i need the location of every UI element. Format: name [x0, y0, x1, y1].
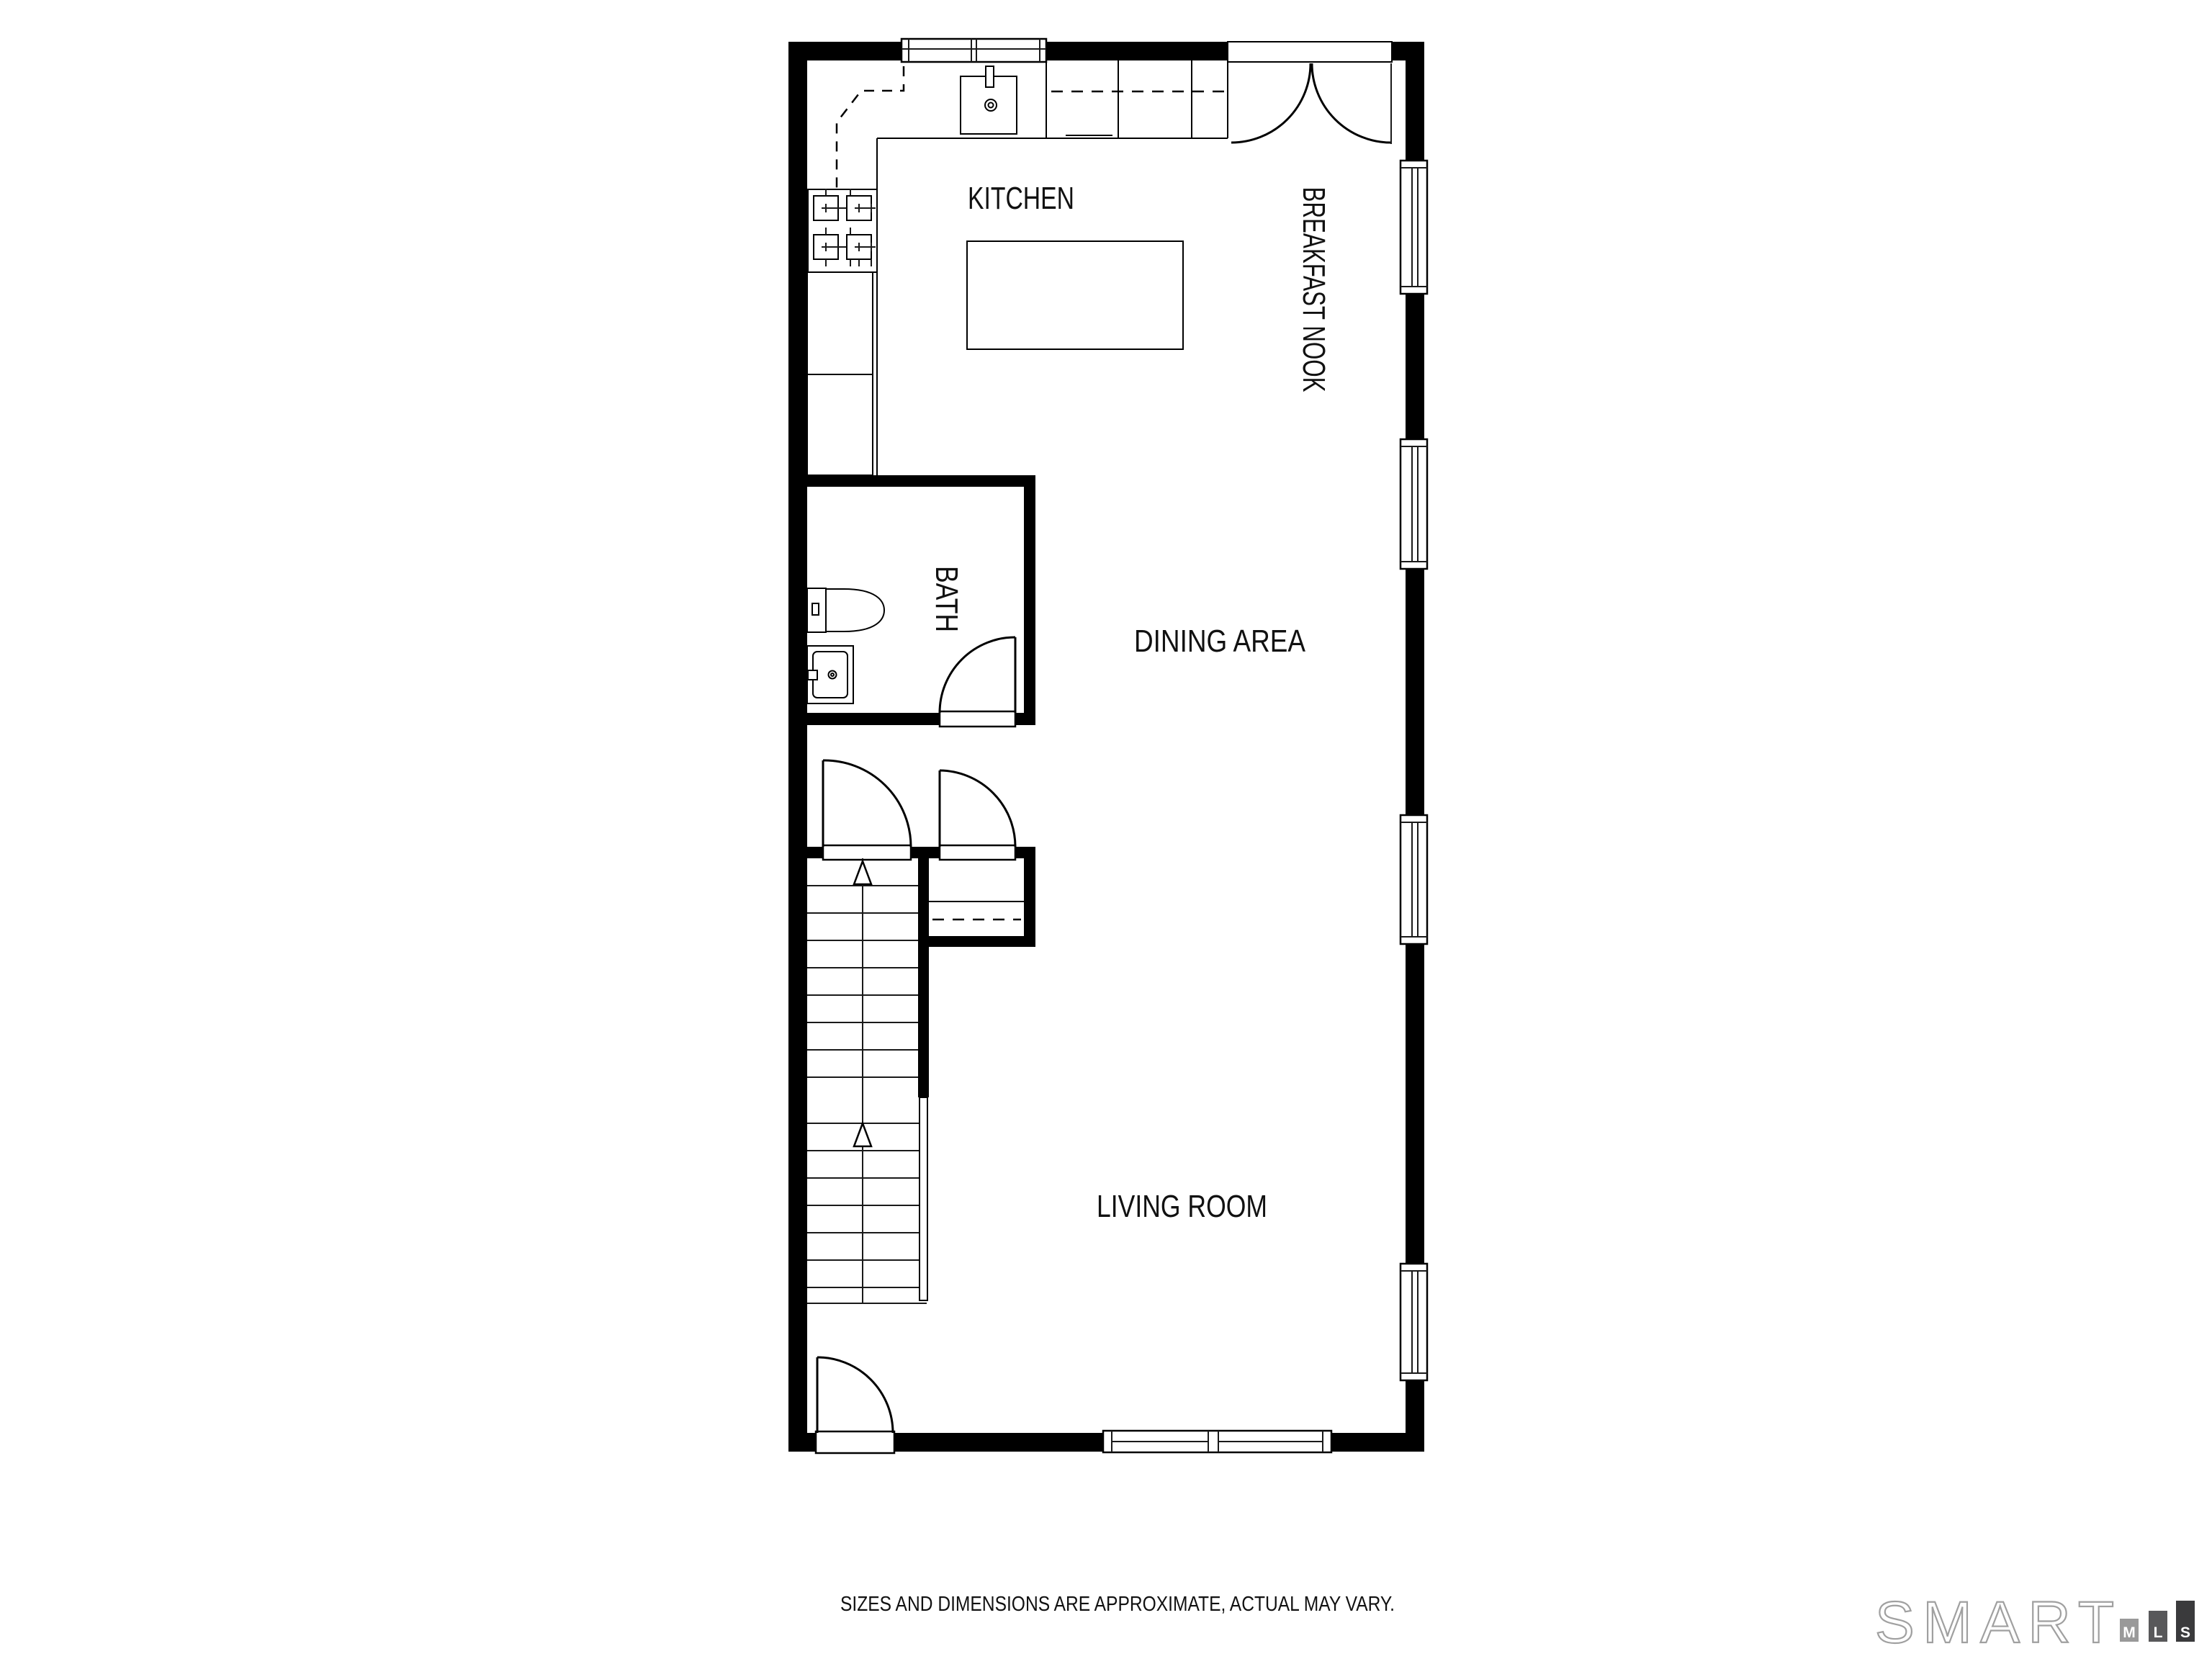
wall-stair-divider: [918, 847, 929, 1097]
logo-bar-m-letter: M: [2123, 1624, 2136, 1641]
wall-top-2: [1046, 42, 1228, 60]
wall-closet-right: [1024, 847, 1035, 947]
wall-right-1: [1406, 42, 1424, 161]
base-cabinet-2: [807, 374, 873, 475]
wall-bath-bottom-1: [788, 713, 940, 725]
disclaimer-text: SIZES AND DIMENSIONS ARE APPROXIMATE, AC…: [840, 1593, 1395, 1616]
window-right-2: [1401, 439, 1427, 569]
bath-vanity: [807, 646, 853, 703]
breakfast-nook-label: BREAKFAST NOOK: [1296, 187, 1331, 392]
wall-right-4: [1406, 944, 1424, 1264]
wall-bottom-2: [893, 1433, 1106, 1452]
toilet: [807, 588, 884, 632]
window-right-1: [1401, 161, 1427, 294]
logo-brand-text: SMART: [1875, 1590, 2114, 1655]
wall-closet-bottom: [918, 936, 1035, 947]
window-right-3: [1401, 815, 1427, 944]
toilet-bowl: [826, 589, 884, 631]
faucet: [986, 66, 994, 87]
living-room-label: LIVING ROOM: [1097, 1189, 1267, 1224]
wall-right-2: [1406, 294, 1424, 439]
wall-bath-bottom-2: [1015, 713, 1035, 725]
floor-plan-canvas: KITCHEN BREAKFAST NOOK BATH DINING AREA …: [0, 0, 2212, 1659]
logo-bar-s-letter: S: [2180, 1624, 2190, 1641]
kitchen-sink: [961, 66, 1017, 134]
wall-bottom-1: [788, 1433, 817, 1452]
dining-area-label: DINING AREA: [1134, 624, 1306, 659]
wall-right-3: [1406, 569, 1424, 815]
range-stove: [808, 189, 877, 272]
bath-label: BATH: [929, 566, 964, 632]
page-background: [0, 0, 2212, 1659]
wall-top-1: [788, 42, 902, 60]
stair-railing: [920, 1097, 927, 1300]
wall-bath-top: [788, 475, 1035, 487]
wall-hall-1: [788, 847, 823, 858]
window-living-room: [1103, 1431, 1331, 1452]
logo-bar-l-letter: L: [2154, 1624, 2163, 1641]
base-cabinet-1: [807, 272, 873, 374]
wall-bottom-3: [1328, 1433, 1424, 1452]
kitchen-label: KITCHEN: [968, 181, 1074, 216]
window-kitchen: [902, 39, 1046, 62]
window-right-4: [1401, 1264, 1427, 1380]
floor-plan-page: KITCHEN BREAKFAST NOOK BATH DINING AREA …: [0, 0, 2212, 1659]
wall-bath-right: [1024, 475, 1035, 725]
wall-left: [788, 42, 807, 1452]
